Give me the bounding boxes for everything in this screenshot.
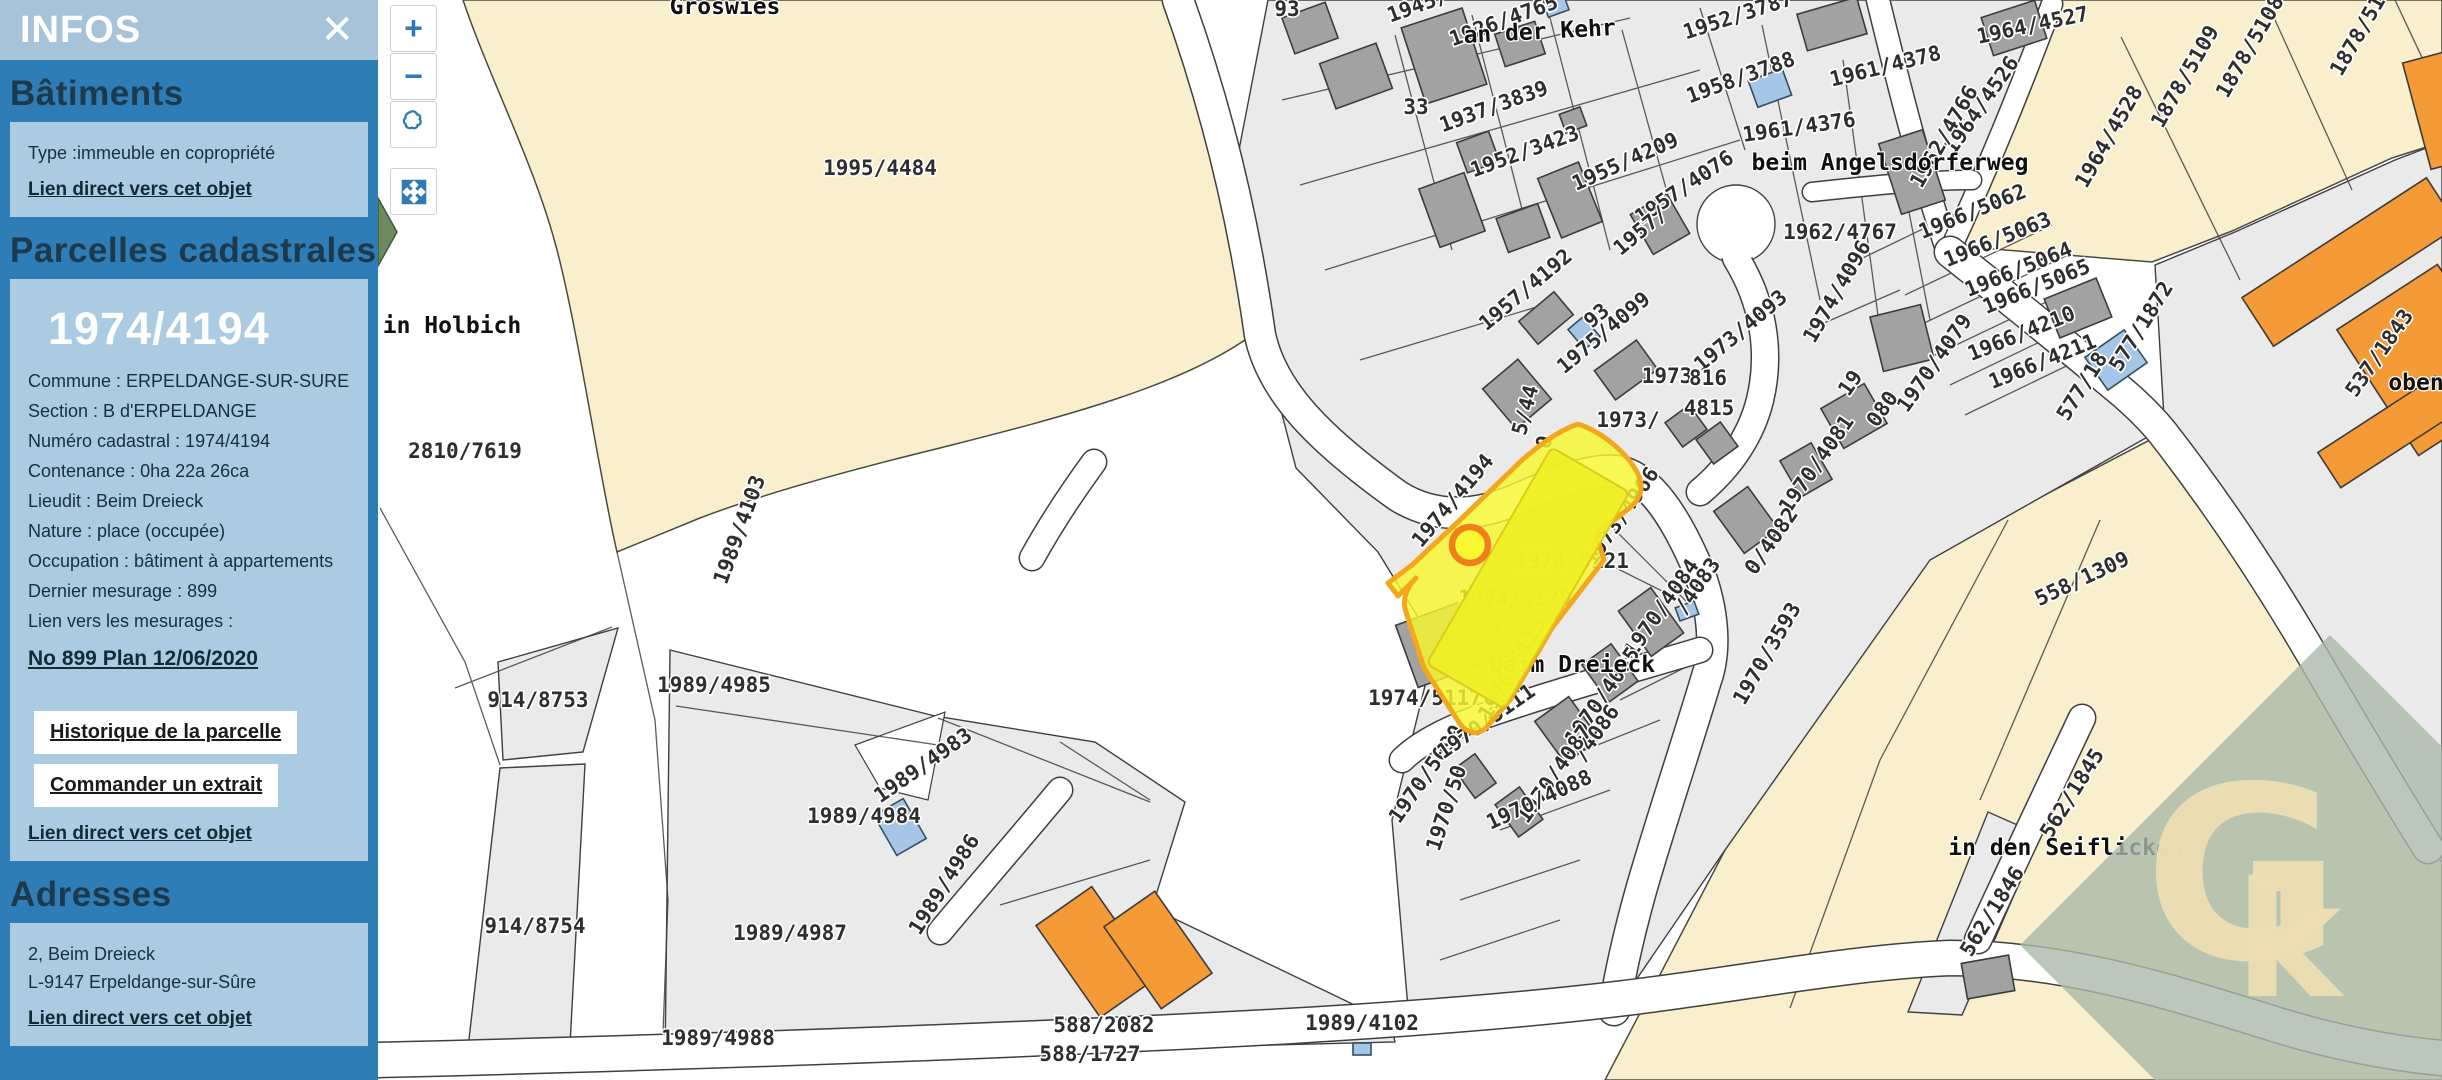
full-extent-button[interactable] <box>390 101 437 148</box>
section-heading-adresses: Adresses <box>10 875 378 915</box>
fullscreen-button[interactable] <box>390 168 437 215</box>
section-heading-batiments: Bâtiments <box>10 74 378 114</box>
batiments-direct-link[interactable]: Lien direct vers cet objet <box>28 179 252 201</box>
place-label: beim Angelsdorferweg <box>1752 150 2029 176</box>
panel-title: INFOS <box>20 9 141 52</box>
parcel-section: Section : B d'ERPELDANGE <box>28 401 350 422</box>
parcel-label: 33 <box>1403 95 1428 119</box>
parcel-label: 588/1727 <box>1039 1042 1140 1066</box>
minus-icon: − <box>404 58 423 95</box>
section-heading-parcelles: Parcelles cadastrales <box>10 231 378 271</box>
parcel-label: 1989/4102 <box>1305 1011 1419 1035</box>
order-extract-button[interactable]: Commander un extrait <box>34 764 278 807</box>
zoom-in-button[interactable]: + <box>390 5 437 52</box>
parcel-label: 914/8754 <box>484 914 585 938</box>
building-type: Type :immeuble en copropriété <box>28 143 350 164</box>
history-button[interactable]: Historique de la parcelle <box>34 711 297 754</box>
address-street: 2, Beim Dreieck <box>28 944 350 965</box>
luxembourg-outline-icon <box>397 108 431 142</box>
parcel-mesurage: Dernier mesurage : 899 <box>28 581 350 602</box>
parcel-label: 1989/4984 <box>807 804 921 828</box>
parcel-number: 1974/4194 <box>48 303 350 355</box>
batiments-box: Type :immeuble en copropriété Lien direc… <box>10 122 368 217</box>
parcel-label: 1989/4987 <box>733 921 847 945</box>
parcel-occupation: Occupation : bâtiment à appartements <box>28 551 350 572</box>
cadastre-viewer: INFOS ✕ Bâtiments Type :immeuble en copr… <box>0 0 2442 1080</box>
parcel-label: 1989/4985 <box>657 673 771 697</box>
parcel-label: 2810/7619 <box>408 439 522 463</box>
parcel-914-8754 <box>468 764 585 1048</box>
parcel-label: 1973/ <box>1596 408 1659 432</box>
parcel-lieudit: Lieudit : Beim Dreieck <box>28 491 350 512</box>
map-controls: + − <box>390 5 437 216</box>
parcel-numero: Numéro cadastral : 1974/4194 <box>28 431 350 452</box>
parcel-label: 1995/4484 <box>823 156 937 180</box>
meadow-parcel-groswies <box>463 0 1252 552</box>
mesurage-plan-link[interactable]: No 899 Plan 12/06/2020 <box>28 647 258 671</box>
parcelles-box: 1974/4194 Commune : ERPELDANGE-SUR-SURE … <box>10 279 368 861</box>
selection-marker <box>1452 527 1488 563</box>
cadastral-map[interactable]: 931945/1926/47651952/37871937/3839331952… <box>378 0 2442 1080</box>
place-label: oben <box>2388 370 2442 396</box>
building <box>1353 1043 1371 1055</box>
parcel-label: 4815 <box>1684 396 1735 420</box>
place-label: in Holbich <box>383 313 521 339</box>
close-icon[interactable]: ✕ <box>316 10 358 50</box>
parcel-nature: Nature : place (occupée) <box>28 521 350 542</box>
address-city: L-9147 Erpeldange-sur-Sûre <box>28 972 350 993</box>
info-panel: INFOS ✕ Bâtiments Type :immeuble en copr… <box>0 0 378 1080</box>
parcelles-direct-link[interactable]: Lien direct vers cet objet <box>28 823 252 845</box>
parcel-label: 1989/4988 <box>661 1026 775 1050</box>
parcel-label: 588/2082 <box>1053 1013 1154 1037</box>
plus-icon: + <box>404 10 423 47</box>
adresses-box: 2, Beim Dreieck L-9147 Erpeldange-sur-Sû… <box>10 923 368 1046</box>
parcel-label: 914/8753 <box>487 688 588 712</box>
expand-arrows-icon <box>398 176 430 208</box>
parcel-label: 1962/4767 <box>1783 220 1897 244</box>
parcel-mesurage-label: Lien vers les mesurages : <box>28 611 350 632</box>
parcel-label: 93 <box>1274 0 1299 21</box>
adresses-direct-link[interactable]: Lien direct vers cet objet <box>28 1008 252 1030</box>
info-panel-header: INFOS ✕ <box>0 0 378 60</box>
building <box>1961 955 2015 999</box>
parcel-label: 1973 <box>1642 364 1693 388</box>
parcel-label: 816 <box>1689 366 1727 390</box>
parcel-commune: Commune : ERPELDANGE-SUR-SURE <box>28 371 350 392</box>
watermark-letter: k <box>2235 847 2345 1034</box>
zoom-out-button[interactable]: − <box>390 53 437 100</box>
parcel-1989-block <box>665 650 1395 1060</box>
place-label: Groswies <box>670 0 781 20</box>
parcel-contenance: Contenance : 0ha 22a 26ca <box>28 461 350 482</box>
